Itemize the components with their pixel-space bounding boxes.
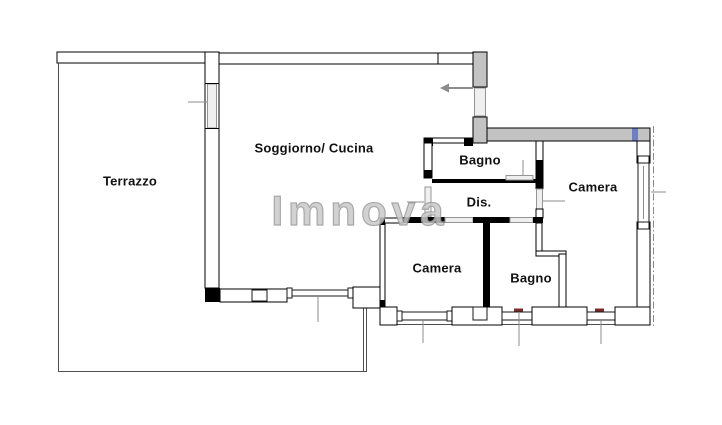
terrace-door (208, 84, 217, 128)
south-wall-soggiorno (220, 287, 380, 322)
watermark: Imnova (271, 187, 448, 235)
entrance-door (475, 88, 486, 116)
window-camera-1 (587, 312, 615, 320)
room-label-bagno-bottom: Bagno (510, 271, 551, 286)
entrance-wall (440, 52, 487, 143)
floorplan-canvas: Imnova Terrazzo Soggiorno/ Cucina Bagno … (0, 0, 722, 425)
door-bagno-2 (510, 218, 533, 223)
window-bagno-2 (502, 312, 532, 320)
window-soggiorno (287, 290, 353, 296)
north-wall (219, 53, 473, 64)
camera-1-walls (536, 141, 566, 218)
south-wall-rooms (380, 307, 650, 346)
north-gray-band (487, 128, 650, 141)
door-camera-1 (537, 189, 543, 209)
east-wall (637, 126, 666, 328)
door-camera-2 (445, 218, 473, 223)
bagno-2-walls (536, 223, 566, 307)
room-label-camera-bottom: Camera (413, 261, 462, 276)
entry-arrow-icon (440, 84, 473, 93)
room-label-camera-right: Camera (569, 180, 618, 195)
band-blue-mark (632, 129, 638, 141)
room-label-bagno-top: Bagno (459, 153, 500, 168)
room-label-dis: Dis. (467, 195, 492, 210)
window-camera-2 (397, 312, 452, 320)
room-label-terrazzo: Terrazzo (103, 174, 157, 189)
room-label-soggiorno-cucina: Soggiorno/ Cucina (255, 141, 374, 156)
terrace-wall (188, 52, 220, 302)
door-bagno-1 (506, 176, 533, 181)
